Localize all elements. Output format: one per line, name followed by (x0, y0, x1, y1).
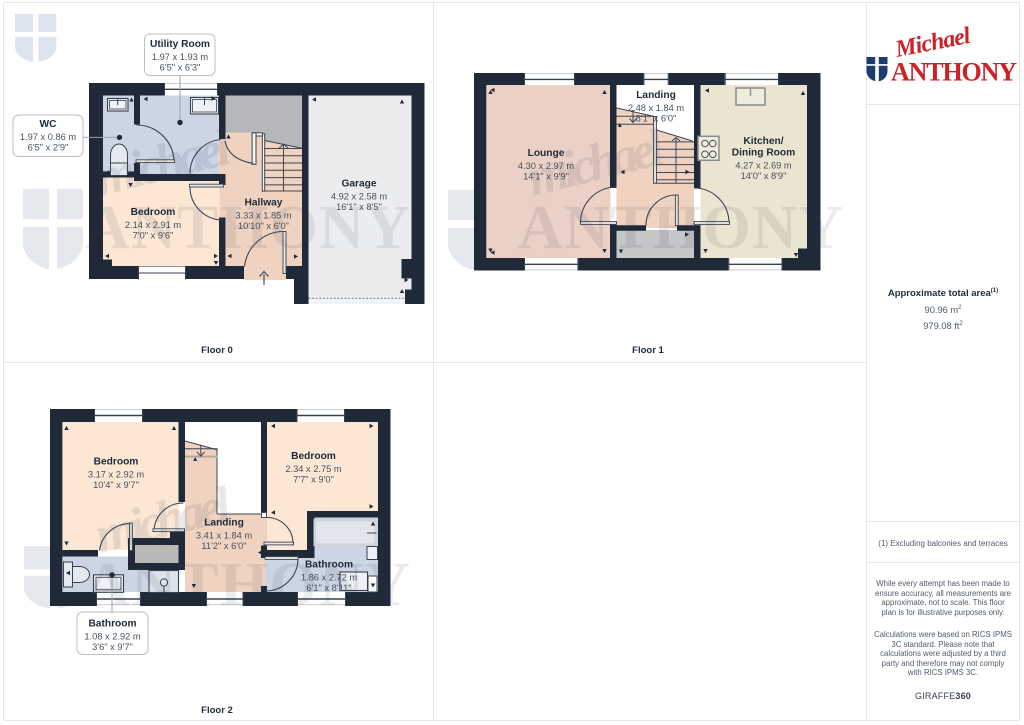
svg-text:Kitchen/: Kitchen/ (743, 136, 783, 147)
svg-text:2.48 x 1.84 m: 2.48 x 1.84 m (628, 103, 685, 113)
svg-text:3'6" x 9'7": 3'6" x 9'7" (92, 642, 133, 652)
svg-text:ANTHONY: ANTHONY (85, 194, 410, 262)
svg-text:Landing: Landing (636, 90, 676, 101)
svg-text:1.97 x 0.86 m: 1.97 x 0.86 m (20, 132, 77, 142)
svg-text:ANTHONY: ANTHONY (85, 551, 410, 619)
svg-text:7'7" x 9'0": 7'7" x 9'0" (293, 475, 334, 485)
svg-text:10'4" x 9'7": 10'4" x 9'7" (93, 480, 139, 490)
svg-text:11'2" x 6'0": 11'2" x 6'0" (201, 541, 246, 551)
svg-text:Bathroom: Bathroom (88, 619, 136, 630)
svg-text:Bedroom: Bedroom (291, 451, 336, 462)
svg-text:Garage: Garage (341, 179, 376, 190)
svg-text:6'5" x 6'3": 6'5" x 6'3" (160, 63, 201, 73)
svg-text:ANTHONY: ANTHONY (891, 58, 1017, 87)
svg-text:6'5" x 2'9": 6'5" x 2'9" (28, 143, 69, 153)
svg-text:1.08 x 2.92 m: 1.08 x 2.92 m (84, 632, 141, 642)
svg-text:14'0" x 8'9": 14'0" x 8'9" (741, 171, 787, 181)
svg-text:3.17 x 2.92 m: 3.17 x 2.92 m (88, 470, 145, 480)
svg-text:Bedroom: Bedroom (94, 457, 139, 468)
svg-text:ANTHONY: ANTHONY (518, 194, 843, 262)
svg-text:2.34 x 2.75 m: 2.34 x 2.75 m (285, 464, 342, 474)
svg-text:Dining Room: Dining Room (732, 148, 795, 159)
svg-text:WC: WC (40, 119, 58, 130)
svg-text:4.27 x 2.69 m: 4.27 x 2.69 m (735, 161, 792, 171)
svg-text:1.97 x 1.93 m: 1.97 x 1.93 m (152, 52, 209, 62)
svg-text:Utility Room: Utility Room (150, 39, 210, 50)
